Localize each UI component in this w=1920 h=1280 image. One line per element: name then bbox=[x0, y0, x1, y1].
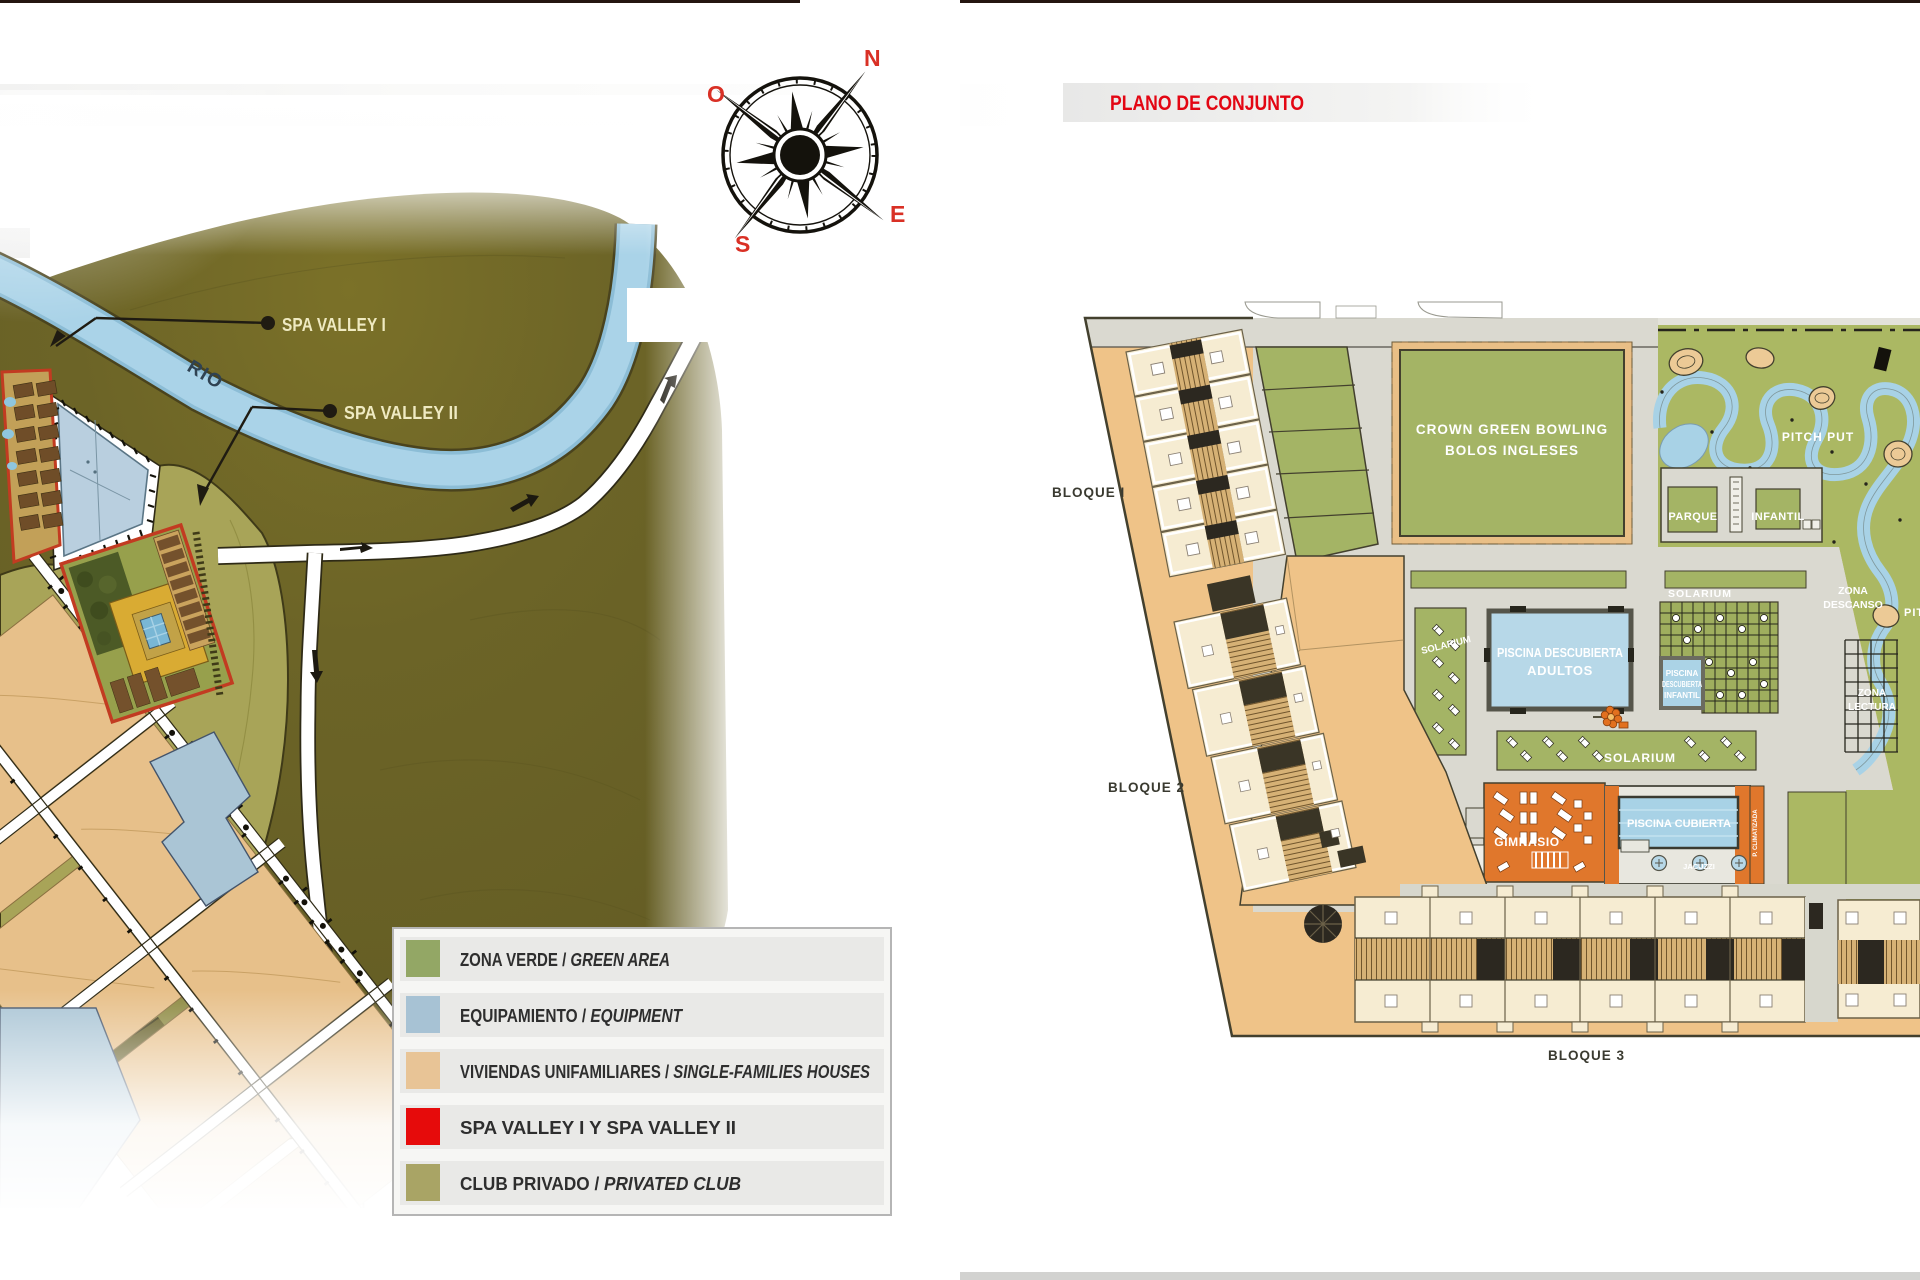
svg-text:GIMNASIO: GIMNASIO bbox=[1494, 835, 1559, 849]
svg-text:JACUZZI: JACUZZI bbox=[1683, 862, 1715, 871]
svg-text:LECTURA: LECTURA bbox=[1848, 702, 1896, 713]
svg-text:PARQUE: PARQUE bbox=[1668, 511, 1717, 523]
svg-text:PISCINA: PISCINA bbox=[1666, 669, 1699, 678]
svg-text:BLOQUE 3: BLOQUE 3 bbox=[1548, 1048, 1625, 1063]
svg-text:PITCH: PITCH bbox=[1904, 607, 1920, 619]
svg-text:EQUIPAMIENTO / EQUIPMENT: EQUIPAMIENTO / EQUIPMENT bbox=[460, 1006, 684, 1026]
svg-text:CROWN GREEN BOWLING: CROWN GREEN BOWLING bbox=[1416, 422, 1608, 437]
svg-text:DESCUBIERTA: DESCUBIERTA bbox=[1662, 680, 1702, 689]
svg-text:O: O bbox=[707, 81, 725, 107]
svg-text:PISCINA DESCUBIERTA: PISCINA DESCUBIERTA bbox=[1497, 646, 1623, 660]
svg-text:ZONA: ZONA bbox=[1838, 585, 1868, 597]
svg-text:CLUB PRIVADO / PRIVATED CLUB: CLUB PRIVADO / PRIVATED CLUB bbox=[460, 1174, 741, 1194]
svg-text:ADULTOS: ADULTOS bbox=[1527, 663, 1593, 678]
svg-text:BLOQUE I: BLOQUE I bbox=[1052, 485, 1125, 500]
svg-text:SOLARIUM: SOLARIUM bbox=[1604, 751, 1676, 765]
svg-text:DESCANSO: DESCANSO bbox=[1823, 599, 1883, 611]
svg-text:BLOQUE 2: BLOQUE 2 bbox=[1108, 780, 1185, 795]
svg-text:E: E bbox=[890, 201, 905, 227]
svg-text:INFANTIL: INFANTIL bbox=[1751, 511, 1805, 523]
svg-text:PITCH PUT: PITCH PUT bbox=[1782, 430, 1854, 444]
svg-text:ZONA VERDE / GREEN AREA: ZONA VERDE / GREEN AREA bbox=[460, 950, 670, 970]
svg-text:SOLARIUM: SOLARIUM bbox=[1668, 588, 1732, 600]
svg-text:N: N bbox=[864, 45, 881, 71]
svg-text:P. CLIMATIZADA: P. CLIMATIZADA bbox=[1753, 809, 1759, 857]
svg-text:INFANTIL: INFANTIL bbox=[1664, 691, 1700, 700]
svg-text:PLANO DE CONJUNTO: PLANO DE CONJUNTO bbox=[1110, 91, 1304, 115]
svg-text:BOLOS INGLESES: BOLOS INGLESES bbox=[1445, 443, 1579, 458]
svg-text:SPA VALLEY I Y SPA VALLEY II: SPA VALLEY I Y SPA VALLEY II bbox=[460, 1118, 736, 1138]
svg-text:VIVIENDAS UNIFAMILIARES / SING: VIVIENDAS UNIFAMILIARES / SINGLE-FAMILIE… bbox=[460, 1062, 870, 1082]
svg-text:S: S bbox=[735, 231, 750, 257]
svg-text:PISCINA CUBIERTA: PISCINA CUBIERTA bbox=[1627, 818, 1731, 830]
svg-text:ZONA: ZONA bbox=[1858, 688, 1886, 699]
